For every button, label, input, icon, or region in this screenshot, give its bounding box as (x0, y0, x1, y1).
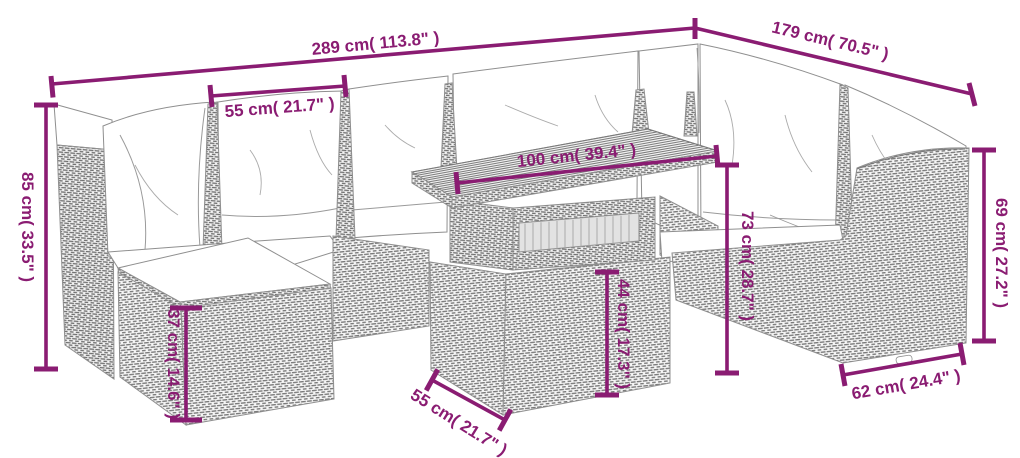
svg-text:85 cm( 33.5" ): 85 cm( 33.5" ) (18, 172, 37, 282)
svg-text:179 cm( 70.5" ): 179 cm( 70.5" ) (770, 18, 891, 64)
svg-text:69 cm( 27.2" ): 69 cm( 27.2" ) (992, 198, 1011, 308)
svg-text:73 cm( 28.7" ): 73 cm( 28.7" ) (738, 211, 757, 321)
svg-text:37 cm( 14.6" ): 37 cm( 14.6" ) (164, 309, 183, 419)
svg-text:44 cm( 17.3" ): 44 cm( 17.3" ) (614, 279, 633, 389)
